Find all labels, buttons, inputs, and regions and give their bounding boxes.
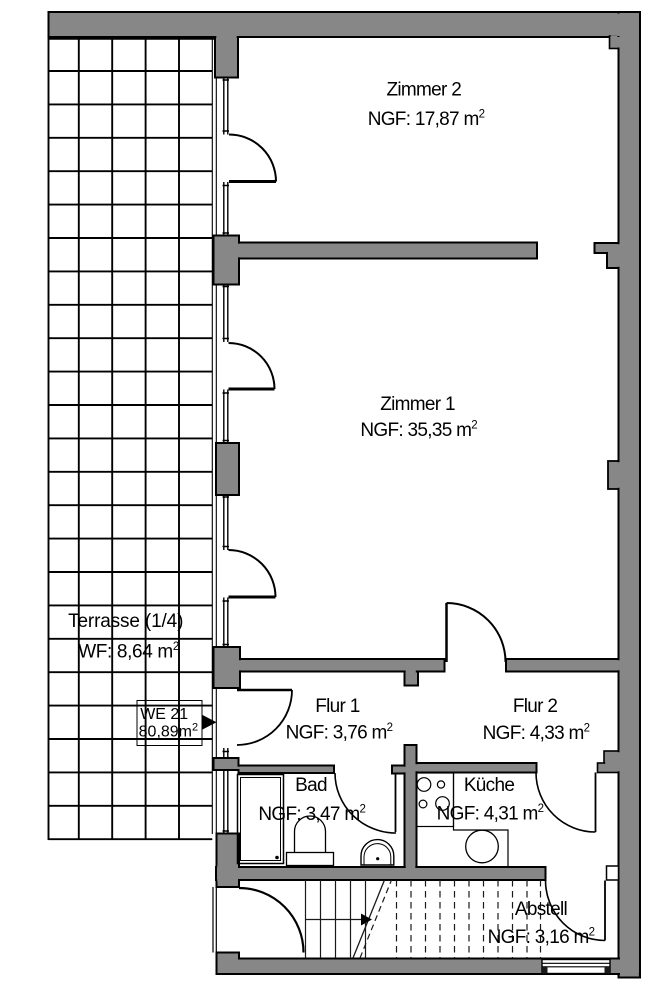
svg-text:NGF: 17,87 m2: NGF: 17,87 m2 (368, 109, 485, 131)
svg-text:NGF: 35,35 m2: NGF: 35,35 m2 (360, 420, 477, 442)
svg-text:Zimmer 1: Zimmer 1 (380, 394, 455, 415)
svg-text:NGF: 3,47 m2: NGF: 3,47 m2 (258, 804, 365, 826)
svg-text:Terrasse (1/4): Terrasse (1/4) (68, 611, 183, 632)
svg-text:Zimmer 2: Zimmer 2 (386, 79, 461, 100)
svg-text:Flur 1: Flur 1 (315, 696, 360, 717)
svg-text:80,89m2: 80,89m2 (139, 722, 199, 741)
svg-text:Bad: Bad (295, 775, 327, 796)
svg-text:WF: 8,64 m2: WF: 8,64 m2 (78, 641, 179, 663)
svg-text:Küche: Küche (464, 775, 515, 796)
svg-text:NGF: 4,33 m2: NGF: 4,33 m2 (483, 723, 590, 745)
svg-text:NGF: 3,76 m2: NGF: 3,76 m2 (286, 722, 393, 744)
svg-text:NGF: 3,16 m2: NGF: 3,16 m2 (488, 927, 595, 949)
svg-text:NGF: 4,31 m2: NGF: 4,31 m2 (437, 803, 544, 825)
svg-text:WE 21: WE 21 (140, 706, 188, 723)
svg-text:Abstell: Abstell (515, 899, 567, 920)
svg-text:Flur 2: Flur 2 (513, 696, 558, 717)
